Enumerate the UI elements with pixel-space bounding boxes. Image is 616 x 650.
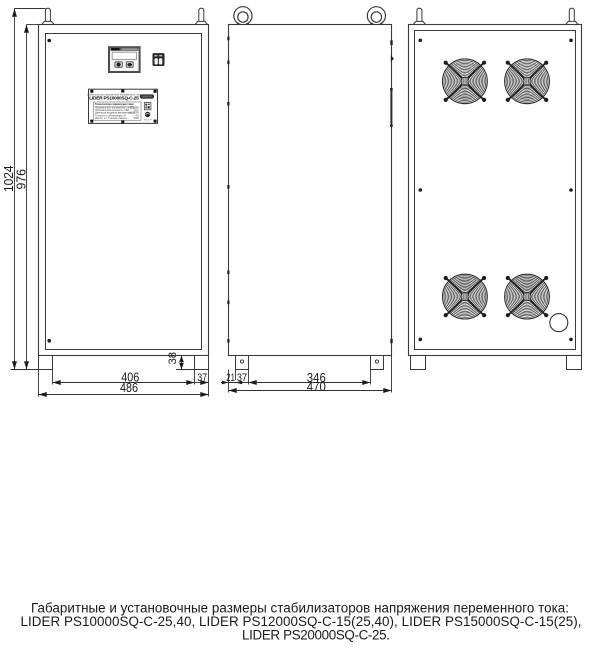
svg-text:21: 21 bbox=[226, 372, 235, 384]
svg-text:37: 37 bbox=[197, 372, 207, 384]
svg-text:38: 38 bbox=[167, 352, 179, 365]
svg-text:486: 486 bbox=[120, 381, 138, 395]
svg-text:LIDER PS20000SQ-C-25.: LIDER PS20000SQ-C-25. bbox=[242, 627, 390, 642]
svg-text:976: 976 bbox=[14, 169, 28, 190]
svg-text:LIDER PS10000SQ-C-25: LIDER PS10000SQ-C-25 bbox=[89, 96, 139, 102]
svg-text:ГОСТ Р: ГОСТ Р bbox=[144, 120, 152, 122]
svg-text:37: 37 bbox=[237, 372, 247, 384]
svg-text:Масса, кг / Степень защиты: Масса, кг / Степень защиты bbox=[95, 117, 127, 120]
svg-text:IP20: IP20 bbox=[134, 117, 140, 120]
svg-text:470: 470 bbox=[307, 380, 326, 394]
